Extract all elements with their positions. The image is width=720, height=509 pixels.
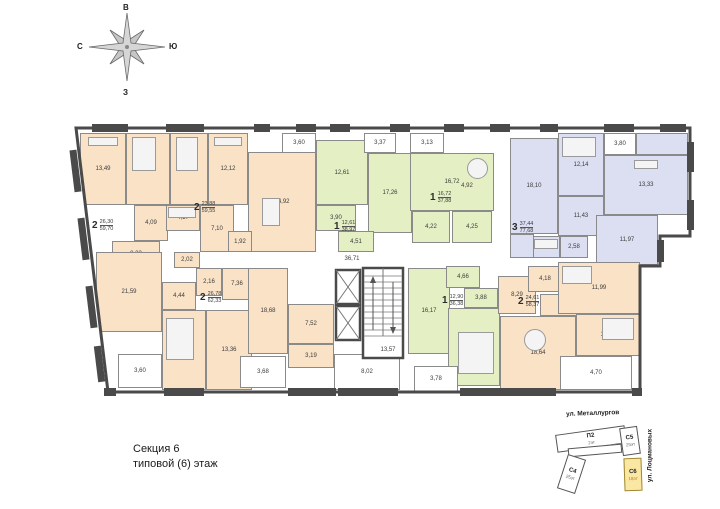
room-cell-bathroom: 4,51 <box>338 231 374 252</box>
apartment-label: 3 37,4477,68 <box>512 221 533 234</box>
apartment-living-area: 23,88 <box>202 201 216 208</box>
room-area-label: 16,17 <box>421 308 436 314</box>
room-cell-balcony: 3,60 <box>282 133 316 153</box>
room-cell-kitchen: 16,17 <box>408 268 450 354</box>
apartment-total-area: 36,38 <box>450 301 464 307</box>
room-cell-hall: 4,22 <box>412 211 450 243</box>
room-cell-niche: 4,92 <box>452 178 482 194</box>
apartment-living-area: 24,61 <box>526 295 540 302</box>
room-area-label: 3,80 <box>614 141 626 147</box>
room-area-label: 3,13 <box>421 140 433 146</box>
room-area-label: 4,70 <box>590 370 602 376</box>
stairs-area-label: 13,57 <box>368 344 408 356</box>
room-area-label: 18,68 <box>260 308 275 314</box>
room-cell-bedroom: 12,61 <box>316 140 368 205</box>
room-area-label: 17,26 <box>382 190 397 196</box>
apartment-rooms-count: 2 <box>194 203 200 213</box>
room-area-label: 4,09 <box>145 220 157 226</box>
apartment-rooms-count: 1 <box>430 193 436 203</box>
room-cell-living: 21,59 <box>96 252 162 332</box>
room-area-label: 4,44 <box>173 293 185 299</box>
furniture-bed <box>132 137 156 171</box>
elevator-shaft-icon <box>336 270 360 340</box>
apartment-total-area: 38,97 <box>342 227 356 233</box>
apartment-label: 2 26,3059,70 <box>92 219 113 232</box>
apartment-living-area: 26,30 <box>100 219 114 226</box>
furniture-bathtub <box>534 239 558 249</box>
apartment-label: 2 23,8859,55 <box>194 201 215 214</box>
room-area-label: 4,25 <box>466 224 478 230</box>
compass-label-left: С <box>77 42 83 51</box>
room-cell-balcony: 3,37 <box>364 133 396 153</box>
room-cell-kitchen-living: 18,10 <box>510 138 558 234</box>
room-area-label: 18,10 <box>526 183 541 189</box>
apartment-label: 2 24,6158,37 <box>518 295 539 308</box>
furniture-bed <box>166 318 194 360</box>
minimap: ул. Металлургов ул. Лоцмановых П2 2эт С5… <box>548 400 720 508</box>
room-cell-bathroom: 4,18 <box>528 266 562 292</box>
room-area-label: 21,59 <box>121 289 136 295</box>
room-area-label: 1,92 <box>234 239 246 245</box>
room-cell-wc: 1,92 <box>228 231 252 252</box>
room-area-label: 13,57 <box>380 347 395 353</box>
building-floors: 25эт <box>626 441 636 447</box>
apartment-living-area: 26,78 <box>208 291 222 298</box>
apartment-living-area: 37,44 <box>520 221 534 228</box>
room-cell-bedroom: 11,97 <box>596 215 658 265</box>
room-area-label: 7,10 <box>211 226 223 232</box>
compass-label-top: В <box>123 3 129 12</box>
apartment-total-area: 59,55 <box>202 208 216 214</box>
corridor-area-label: 36,71 <box>320 251 384 267</box>
room-cell-bathroom: 3,88 <box>464 288 498 308</box>
street-label-lotsmanovyh: ул. Лоцмановых <box>647 414 654 498</box>
furniture-bed <box>458 332 494 374</box>
minimap-building-c6-highlighted: С6 18эт <box>623 458 642 492</box>
room-area-label: 2,02 <box>181 257 193 263</box>
furniture-desk <box>214 137 242 146</box>
room-cell-blank <box>510 234 534 258</box>
caption-floor: типовой (6) этаж <box>133 457 218 472</box>
room-area-label: 3,19 <box>305 353 317 359</box>
room-area-label: 7,52 <box>305 321 317 327</box>
room-area-label: 11,43 <box>574 213 589 219</box>
street-label-metallurgov: ул. Металлургов <box>566 409 619 418</box>
room-area-label: 12,12 <box>220 166 235 172</box>
furniture-bed <box>562 137 596 157</box>
apartment-label: 1 12,6138,97 <box>334 220 355 233</box>
furniture-bed <box>562 266 592 284</box>
compass-rose: В С Ю З <box>75 0 180 104</box>
minimap-building-c5: С5 25эт <box>619 426 641 456</box>
room-area-label: 4,66 <box>457 274 469 280</box>
room-area-label: 2,16 <box>203 279 215 285</box>
apartment-total-area: 37,88 <box>438 198 452 204</box>
furniture-bathtub <box>168 207 196 218</box>
compass-label-bottom: З <box>123 88 128 97</box>
room-area-label: 13,36 <box>221 347 236 353</box>
apartment-living-area: 12,61 <box>342 220 356 227</box>
room-area-label: 3,68 <box>257 369 269 375</box>
compass-label-right: Ю <box>169 42 177 51</box>
room-cell-bathroom: 4,25 <box>452 211 492 243</box>
furniture-table <box>524 329 546 351</box>
apartment-rooms-count: 1 <box>334 222 340 232</box>
room-cell-bathroom: 4,09 <box>134 205 168 241</box>
room-area-label: 4,92 <box>461 183 473 189</box>
room-cell-hall: 4,66 <box>446 266 480 288</box>
furniture-table <box>262 198 280 226</box>
apartment-rooms-count: 1 <box>442 296 448 306</box>
apartment-rooms-count: 2 <box>92 221 98 231</box>
apartment-label: 2 26,7862,33 <box>200 291 221 304</box>
caption-section: Секция 6 <box>133 442 218 457</box>
room-area-label: 3,60 <box>293 140 305 146</box>
room-area-label: 36,71 <box>344 256 359 262</box>
room-area-label: 8,02 <box>361 369 373 375</box>
room-area-label: 2,58 <box>568 244 580 250</box>
apartment-total-area: 59,70 <box>100 226 114 232</box>
room-area-label: 13,49 <box>95 166 110 172</box>
room-area-label: 3,37 <box>374 140 386 146</box>
building-floors: 18эт <box>628 475 637 480</box>
plan-caption: Секция 6 типовой (6) этаж <box>133 442 218 472</box>
room-cell-balcony: 3,68 <box>240 356 286 388</box>
room-cell-blank <box>636 133 688 155</box>
room-area-label: 4,22 <box>425 224 437 230</box>
room-cell-balcony: 3,78 <box>414 366 458 392</box>
room-cell-lobby: 8,02 <box>334 354 400 390</box>
room-area-label: 12,14 <box>573 162 588 168</box>
room-area-label: 4,18 <box>539 276 551 282</box>
room-cell-balcony: 3,60 <box>118 354 162 388</box>
furniture-desk <box>88 137 118 146</box>
floor-plan-page: В С Ю З 13,49 12,81 11,76 12,12 14,92 3,… <box>0 0 720 509</box>
room-area-label: 3,60 <box>134 368 146 374</box>
building-floors: 2эт <box>588 440 595 446</box>
furniture-desk <box>634 160 658 169</box>
room-area-label: 12,61 <box>334 170 349 176</box>
room-cell-hall: 7,52 <box>288 304 334 344</box>
room-area-label: 11,99 <box>592 285 607 291</box>
room-cell-balcony: 4,70 <box>560 356 632 390</box>
room-area-label: 4,51 <box>350 239 362 245</box>
apartment-living-area: 12,90 <box>450 294 464 301</box>
room-cell-kitchen-living: 14,92 <box>248 152 316 252</box>
room-cell-hall: 4,44 <box>162 282 196 310</box>
room-cell-wc: 2,58 <box>560 236 588 258</box>
room-cell-kitchen: 17,26 <box>368 153 412 233</box>
apartment-rooms-count: 2 <box>518 297 524 307</box>
apartment-label: 1 12,9036,38 <box>442 294 463 307</box>
apartment-living-area: 16,72 <box>438 191 452 198</box>
room-area-label: 7,36 <box>231 281 243 287</box>
minimap-building-c4: С4 25эт <box>557 454 586 494</box>
apartment-total-area: 77,68 <box>520 228 534 234</box>
room-area-label: 13,33 <box>638 182 653 188</box>
apartment-total-area: 58,37 <box>526 302 540 308</box>
furniture-bed <box>602 318 634 340</box>
room-area-label: 3,78 <box>430 376 442 382</box>
apartment-rooms-count: 3 <box>512 223 518 233</box>
furniture-table <box>467 158 488 179</box>
room-cell-bathroom: 3,19 <box>288 344 334 368</box>
apartment-total-area: 62,33 <box>208 298 222 304</box>
room-cell-storage: 2,02 <box>174 252 200 268</box>
apartment-rooms-count: 2 <box>200 293 206 303</box>
furniture-bed <box>176 137 198 171</box>
apartment-label: 1 16,7237,88 <box>430 191 451 204</box>
room-area-label: 3,88 <box>475 295 487 301</box>
room-cell-kitchen-living: 18,68 <box>248 268 288 354</box>
room-cell-balcony: 3,80 <box>604 133 636 155</box>
room-cell-balcony: 3,13 <box>410 133 444 153</box>
room-area-label: 11,97 <box>620 237 635 243</box>
